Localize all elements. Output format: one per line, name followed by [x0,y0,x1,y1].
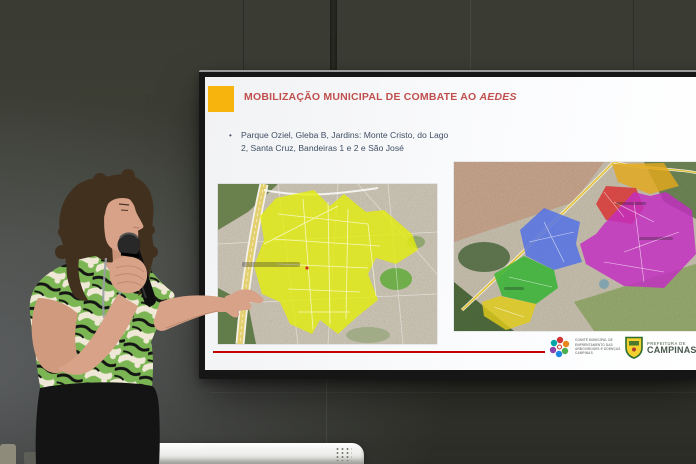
wall-seam [633,0,634,70]
city-logo-text: PREFEITURA DE CAMPINAS [647,341,696,355]
map-marker [305,266,308,269]
wall-seam [326,378,327,446]
slide: MOBILIZAÇÃO MUNICIPAL DE COMBATE AO AEDE… [205,77,696,370]
bullet-marker: • [229,131,232,140]
presenter-skirt [36,382,160,464]
slide-title: MOBILIZAÇÃO MUNICIPAL DE COMBATE AO AEDE… [244,91,564,103]
wall-seam [243,0,244,70]
city-coat-of-arms-icon [624,336,644,359]
wall-seam-dark [330,0,337,70]
presenter-mic-hand [110,257,147,294]
presentation-screen: MOBILIZAÇÃO MUNICIPAL DE COMBATE AO AEDE… [199,70,696,379]
committee-logo-text: COMITÊ MUNICIPAL DE ENFRENTAMENTO DAS AR… [575,338,631,355]
city-logo: PREFEITURA DE CAMPINAS [624,336,696,359]
committee-logo: COMITÊ MUNICIPAL DE ENFRENTAMENTO DAS AR… [548,335,631,359]
committee-logo-icon [548,335,572,359]
satellite-map-right [454,162,696,331]
slide-bullet-text: Parque Oziel, Gleba B, Jardins: Monte Cr… [241,129,453,155]
presenter [0,168,270,464]
slide-title-text: MOBILIZAÇÃO MUNICIPAL DE COMBATE AO [244,91,479,103]
slide-accent-block [208,86,234,112]
slide-title-emphasis: AEDES [479,91,516,103]
wall-seam [210,392,696,393]
photo-frame: MOBILIZAÇÃO MUNICIPAL DE COMBATE AO AEDE… [0,0,696,464]
microphone-head [118,233,141,256]
presenter-hand [223,289,264,317]
wall-unit-vents [335,447,352,461]
wall-seam [470,0,471,70]
